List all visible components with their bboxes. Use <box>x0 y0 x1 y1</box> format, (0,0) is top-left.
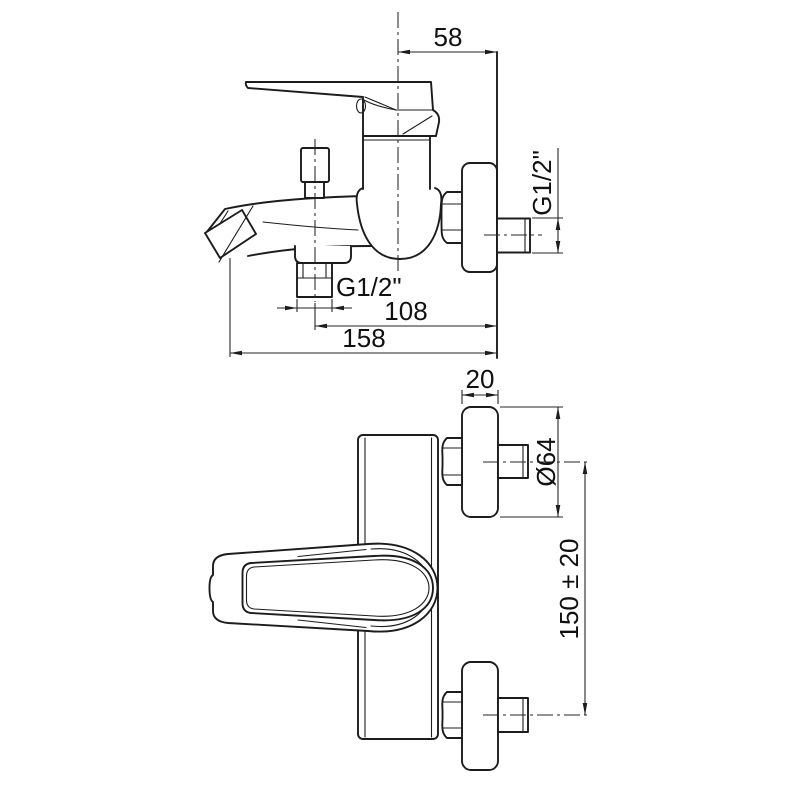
arrowhead <box>556 407 561 419</box>
side-view <box>205 52 530 358</box>
dim-label-58: 58 <box>434 22 463 52</box>
arrowhead <box>485 351 497 356</box>
dim-shower-outlet-thread: G1/2" <box>277 272 402 312</box>
dim-label-g12-stub: G1/2" <box>527 150 557 216</box>
dim-body-center-to-wall: 58 <box>398 22 497 54</box>
bath-mixer-drawing: 58 G1/2" 108 158 <box>0 0 800 800</box>
dim-label-d64: Ø64 <box>531 437 561 486</box>
body-nut-side <box>442 192 464 243</box>
handle-side <box>246 82 439 136</box>
handle-front <box>210 544 438 632</box>
escutcheon-bottom-front <box>462 662 498 770</box>
technical-drawing-page: 58 G1/2" 108 158 <box>0 0 800 800</box>
dim-label-150: 150 ± 20 <box>554 538 584 639</box>
wall-connection-side <box>442 52 531 358</box>
dim-wall-inlet-thread: G1/2" <box>527 148 563 253</box>
handle-grip-contour <box>243 556 434 621</box>
escutcheon-side <box>462 163 497 272</box>
dim-label-108: 108 <box>384 296 427 326</box>
arrowhead <box>398 50 410 55</box>
arrowhead <box>556 218 561 230</box>
arrowhead <box>485 50 497 55</box>
mixer-body-side <box>357 136 442 259</box>
nut-bottom-front <box>442 692 462 738</box>
dim-label-20: 20 <box>466 364 495 394</box>
arrowhead <box>230 351 242 356</box>
wall-connection-bottom-front <box>442 662 528 770</box>
arrowhead <box>332 306 344 311</box>
nut-top-front <box>442 438 462 485</box>
arrowhead <box>556 241 561 253</box>
arrowhead <box>556 505 561 517</box>
arrowhead <box>285 306 297 311</box>
body-dome-fill <box>357 183 442 259</box>
arrowhead <box>485 324 497 329</box>
dim-escutcheon-depth: 20 <box>462 364 498 404</box>
arrowhead <box>583 703 588 715</box>
outlet-boss-fill <box>295 246 351 263</box>
dim-inlet-spacing: 150 ± 20 <box>554 462 587 715</box>
arrowhead <box>315 324 327 329</box>
front-view <box>210 407 529 770</box>
dim-label-158: 158 <box>342 323 385 353</box>
arrowhead <box>583 462 588 474</box>
handle-outline <box>246 82 439 136</box>
